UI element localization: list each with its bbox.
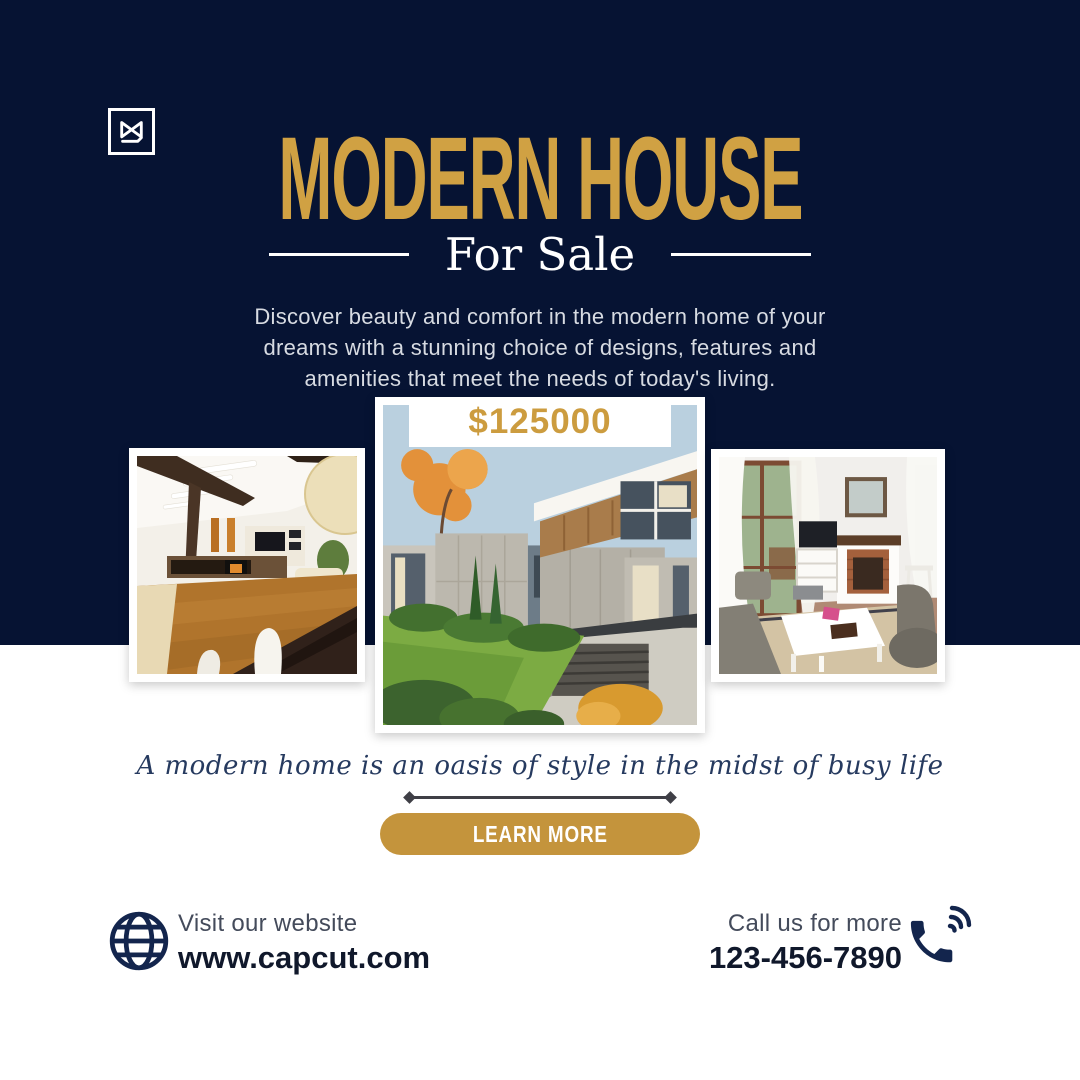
living-room-illustration xyxy=(137,456,357,674)
divider xyxy=(0,793,1080,802)
phone-label: Call us for more xyxy=(709,910,902,938)
phone-number[interactable]: 123-456-7890 xyxy=(709,940,902,976)
subtitle: For Sale xyxy=(445,230,635,280)
subtitle-left-line xyxy=(269,253,409,256)
learn-more-button[interactable]: LEARN MORE xyxy=(380,813,700,855)
quote-text: A modern home is an oasis of style in th… xyxy=(0,751,1080,781)
phone-block: Call us for more 123-456-7890 xyxy=(709,910,902,976)
subtitle-right-line xyxy=(671,253,811,256)
divider-right-diamond xyxy=(664,791,677,804)
phone-icon xyxy=(904,905,972,971)
cozy-lounge-illustration xyxy=(719,457,937,674)
house-exterior-illustration xyxy=(383,405,697,725)
divider-line xyxy=(414,796,666,799)
subtitle-row: For Sale xyxy=(0,230,1080,280)
divider-left-diamond xyxy=(403,791,416,804)
photo-living-room xyxy=(129,448,365,682)
price-value: $125000 xyxy=(468,402,611,442)
globe-icon xyxy=(106,908,172,974)
photo-house-exterior xyxy=(375,397,705,733)
website-url[interactable]: www.capcut.com xyxy=(178,940,430,976)
website-block: Visit our website www.capcut.com xyxy=(178,910,430,976)
price-tag: $125000 xyxy=(409,397,671,447)
title-wrap: MODERN HOUSE xyxy=(0,120,1080,238)
poster: MODERN HOUSE For Sale Discover beauty an… xyxy=(0,0,1080,1080)
website-label: Visit our website xyxy=(178,910,430,938)
photo-cozy-lounge xyxy=(711,449,945,682)
learn-more-label: LEARN MORE xyxy=(473,821,608,848)
page-title: MODERN HOUSE xyxy=(278,120,802,238)
intro-text: Discover beauty and comfort in the moder… xyxy=(220,301,860,394)
